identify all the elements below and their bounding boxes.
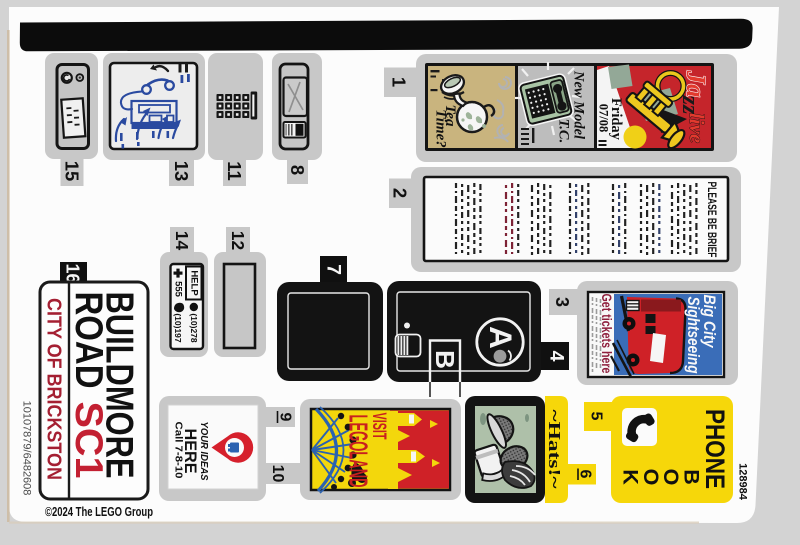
svg-text:Call 7-8-10: Call 7-8-10 xyxy=(173,422,185,479)
svg-text:128984: 128984 xyxy=(737,463,749,501)
svg-text:Ja: Ja xyxy=(681,70,711,98)
svg-text:Sightseeing: Sightseeing xyxy=(684,297,703,374)
svg-text:14: 14 xyxy=(172,231,192,251)
svg-text:HELP: HELP xyxy=(188,270,199,296)
svg-text:ROAD: ROAD xyxy=(67,292,110,389)
svg-text:15: 15 xyxy=(62,161,83,182)
svg-text:9: 9 xyxy=(277,413,294,422)
svg-text:PLEASE BE BRIEF: PLEASE BE BRIEF xyxy=(705,182,717,258)
svg-text:©2024 The LEGO Group: ©2024 The LEGO Group xyxy=(45,504,153,519)
svg-text:6: 6 xyxy=(577,470,594,479)
svg-text:live: live xyxy=(685,113,709,143)
svg-text:555: 555 xyxy=(173,281,184,298)
svg-text:2: 2 xyxy=(390,188,411,198)
svg-text:5: 5 xyxy=(588,412,605,421)
svg-text:B: B xyxy=(430,350,460,369)
svg-text:LEGOLAND: LEGOLAND xyxy=(344,415,374,488)
svg-text:Time?: Time? xyxy=(433,109,449,148)
svg-text:4: 4 xyxy=(546,351,568,362)
svg-text:Get tickets here: Get tickets here xyxy=(599,294,615,374)
svg-text:10107879/6482608: 10107879/6482608 xyxy=(21,401,33,496)
svg-text:07/08: 07/08 xyxy=(597,104,611,132)
svg-text:8: 8 xyxy=(287,165,308,175)
svg-text:7: 7 xyxy=(323,264,345,275)
svg-text:K: K xyxy=(619,469,643,485)
svg-text:1: 1 xyxy=(389,77,410,87)
svg-text:T.C.: T.C. xyxy=(556,119,572,143)
svg-text:CITY OF BRICKSTON: CITY OF BRICKSTON xyxy=(43,298,65,480)
svg-text:~Hats!~: ~Hats!~ xyxy=(545,410,564,489)
svg-text:A: A xyxy=(483,326,519,349)
svg-text:(10)197: (10)197 xyxy=(173,313,183,343)
svg-text:11: 11 xyxy=(224,161,245,181)
svg-text:10: 10 xyxy=(269,465,286,483)
svg-text:12: 12 xyxy=(228,231,248,251)
svg-text:(10)278: (10)278 xyxy=(189,313,199,343)
svg-text:SC1: SC1 xyxy=(67,402,110,479)
svg-text:PHONE: PHONE xyxy=(700,409,730,489)
svg-text:New Model: New Model xyxy=(571,70,587,139)
svg-text:3: 3 xyxy=(552,297,572,307)
svg-text:13: 13 xyxy=(171,161,192,182)
